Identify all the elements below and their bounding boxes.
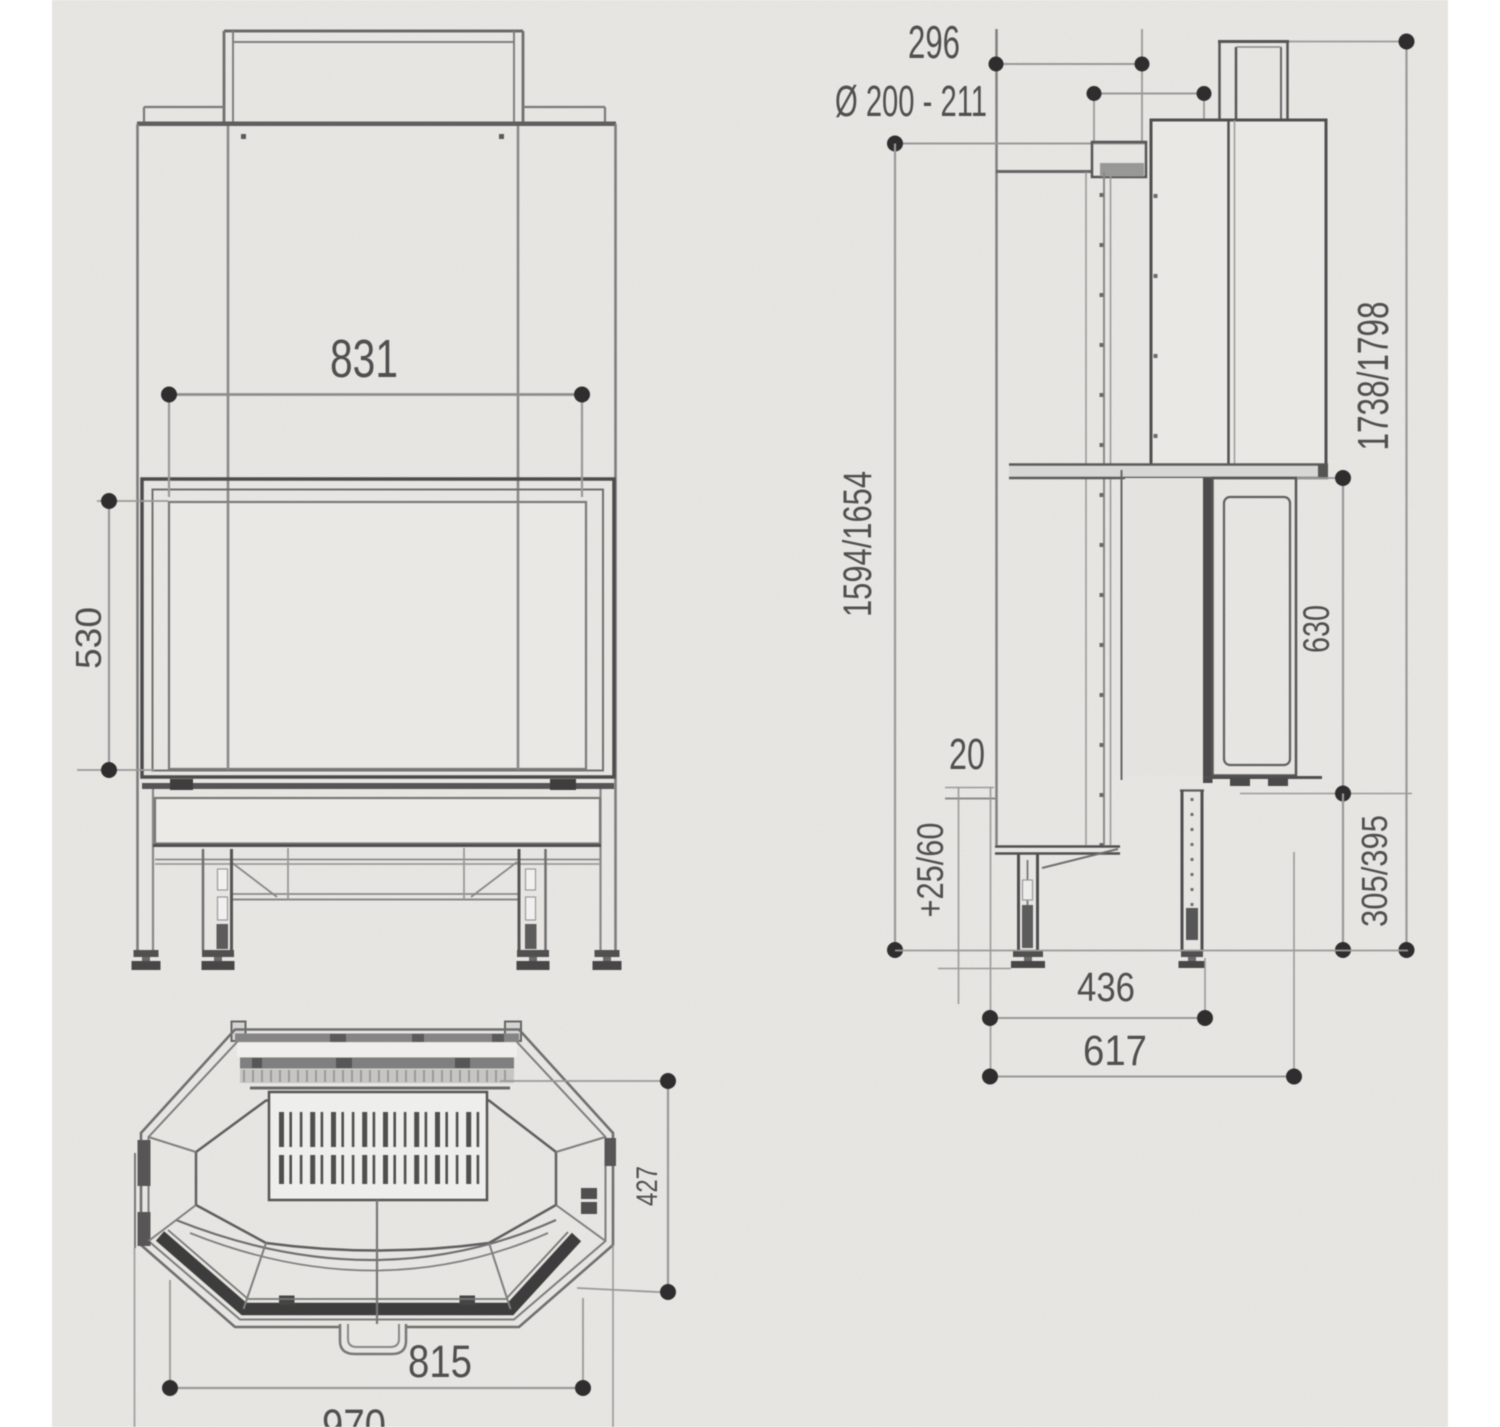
svg-text:1594/1654: 1594/1654 bbox=[836, 471, 880, 617]
svg-text:296: 296 bbox=[908, 16, 960, 68]
svg-text:630: 630 bbox=[1296, 605, 1337, 653]
svg-text:20: 20 bbox=[949, 730, 985, 779]
svg-text:815: 815 bbox=[408, 1336, 472, 1387]
svg-text:305/395: 305/395 bbox=[1354, 815, 1395, 927]
svg-text:970: 970 bbox=[322, 1400, 386, 1427]
svg-text:1738/1798: 1738/1798 bbox=[1349, 302, 1398, 451]
svg-text:436: 436 bbox=[1077, 964, 1135, 1010]
svg-text:427: 427 bbox=[631, 1166, 664, 1206]
svg-text:+25/60: +25/60 bbox=[910, 823, 951, 918]
svg-text:617: 617 bbox=[1083, 1027, 1147, 1075]
svg-text:831: 831 bbox=[330, 329, 398, 389]
svg-text:530: 530 bbox=[68, 607, 109, 669]
svg-text:Ø 200 - 211: Ø 200 - 211 bbox=[835, 77, 987, 126]
